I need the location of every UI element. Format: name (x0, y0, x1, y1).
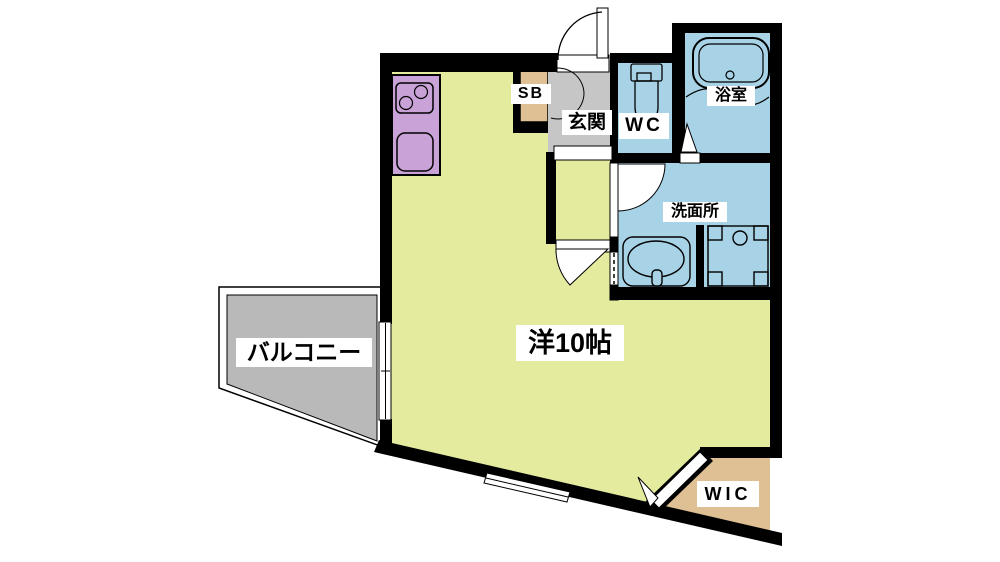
wall-wc-top (610, 53, 672, 63)
washroom-opening (610, 163, 618, 237)
bathroom-door-opening (680, 153, 700, 163)
entrance-label: 玄関 (562, 110, 612, 135)
toilet-label: WC (619, 113, 669, 139)
toilet-room-floor (618, 63, 672, 153)
washroom-opening-stub-b (610, 285, 618, 300)
wall-hall-left (546, 152, 556, 244)
entrance-hall-opening (554, 146, 612, 160)
washroom-opening-stub-a (610, 237, 618, 252)
wall-wic-top (700, 447, 782, 458)
wall-right-lower (770, 300, 782, 458)
wall-shoebox-bottom (518, 122, 548, 133)
bathroom-label: 浴室 (707, 86, 755, 106)
balcony-floor (227, 295, 377, 441)
floorplan-drawing (0, 0, 1000, 562)
wall-washroom-divider (696, 225, 704, 287)
balcony-area (219, 287, 383, 447)
floorplan-canvas: SB 玄関 WC 浴室 洗面所 洋10帖 バルコニー WIC (0, 0, 1000, 562)
shoe-box-label: SB (511, 84, 551, 104)
wall-bath-top (672, 23, 782, 33)
washroom-label: 洗面所 (663, 202, 727, 222)
balcony-label: バルコニー (236, 338, 372, 367)
entrance-door-leaf[interactable] (597, 8, 608, 58)
entrance-floor (548, 60, 610, 152)
wall-left-upper (380, 53, 392, 324)
entrance-door-swing (558, 12, 602, 60)
wall-top (380, 53, 558, 72)
main-room-label: 洋10帖 (516, 325, 624, 361)
wall-washroom-bottom (610, 287, 782, 300)
balcony-window[interactable] (379, 322, 391, 420)
walk-in-closet-label: WIC (697, 481, 759, 507)
